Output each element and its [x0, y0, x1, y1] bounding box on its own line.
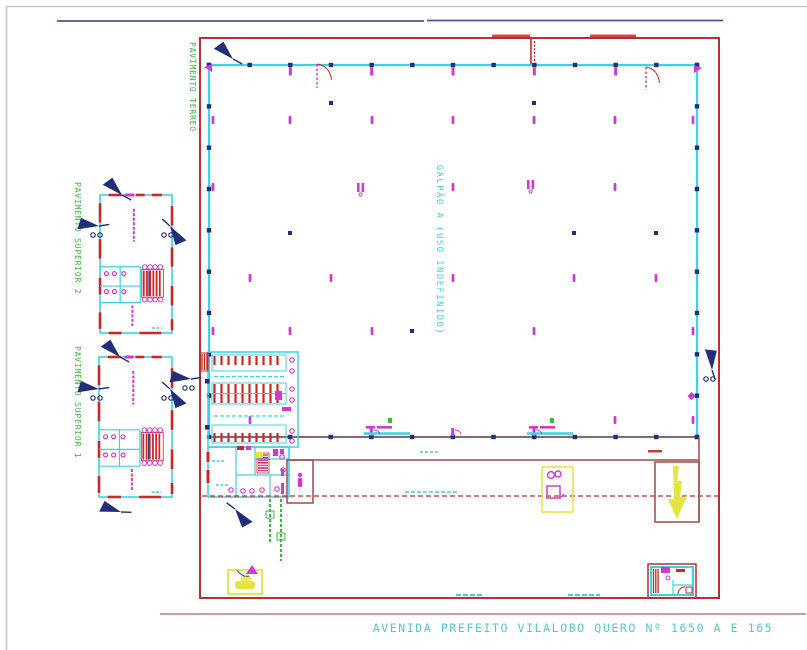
- fixture-mark: [290, 439, 294, 443]
- sprinkler-tick: [614, 416, 617, 424]
- toilet-fixture: [121, 453, 125, 457]
- column-marker: [207, 187, 211, 191]
- wall-diamond: [688, 392, 696, 400]
- section-triangle-icon: [99, 338, 123, 357]
- column-marker: [695, 187, 699, 191]
- fixture-mark: [686, 587, 692, 593]
- wall-tick: [452, 68, 455, 76]
- column-marker: [207, 311, 211, 315]
- symbol-bar: [362, 183, 365, 192]
- scallop: [153, 265, 158, 270]
- column-marker: [695, 311, 699, 315]
- level-text: [529, 426, 538, 429]
- column-marker: [695, 104, 699, 108]
- fixture-mark: [661, 567, 670, 573]
- column-marker: [207, 145, 211, 149]
- level-text: [540, 426, 555, 429]
- scallop: [142, 265, 147, 270]
- flow-arrow-icon: [668, 466, 687, 519]
- section-tail: [121, 509, 131, 514]
- sprinkler-tick: [533, 327, 536, 335]
- column-marker: [695, 228, 699, 232]
- fixture-mark: [282, 407, 291, 411]
- fixture-mark: [290, 369, 294, 373]
- interior-column: [329, 101, 333, 105]
- scallop: [158, 461, 163, 466]
- level-text: [377, 426, 392, 429]
- section-number: [190, 386, 194, 390]
- label-warehouse-a: GALPÃO A (USO INDEFINIDO): [434, 165, 445, 335]
- sprinkler-tick: [289, 116, 292, 124]
- fixture-mark: [290, 387, 294, 391]
- fixture-mark: [281, 483, 284, 494]
- sprinkler-tick: [452, 183, 455, 191]
- toilet-fixture: [122, 272, 126, 276]
- column-marker: [695, 352, 699, 356]
- scallop: [148, 297, 153, 302]
- scallop: [147, 428, 152, 433]
- door-arc: [678, 587, 685, 594]
- door-arc: [455, 430, 461, 434]
- section-tail: [232, 59, 242, 64]
- fixture-mark: [666, 576, 670, 580]
- toilet-fixture: [112, 435, 116, 439]
- sprinkler-tick: [212, 183, 215, 191]
- toilet-fixture: [104, 290, 108, 294]
- section-marker: [220, 503, 255, 531]
- wall-tick: [614, 68, 617, 76]
- fence-label-text: [492, 35, 530, 38]
- column-marker: [207, 104, 211, 108]
- column-marker: [247, 63, 251, 67]
- scallop: [158, 265, 163, 270]
- column-marker: [613, 435, 617, 439]
- scallop: [153, 461, 158, 466]
- equipment-mark: [256, 452, 263, 458]
- fence-labels: [492, 35, 636, 67]
- section-triangle-icon: [230, 509, 255, 530]
- symbol-bar: [357, 183, 360, 192]
- interior-sprinkler-grid: [212, 101, 695, 424]
- interior-column: [532, 101, 536, 105]
- scallop: [158, 297, 163, 302]
- column-marker: [207, 228, 211, 232]
- section-tail: [99, 385, 109, 392]
- section-number: [162, 396, 166, 400]
- sprinkler-tick: [330, 274, 333, 282]
- person-symbol: [298, 478, 302, 487]
- street-address-label: AVENIDA PREFEITO VILALOBO QUERO Nº 1650 …: [373, 621, 774, 635]
- equipment-symbol: [548, 472, 555, 479]
- sprinkler-tick: [371, 327, 374, 335]
- label-upper-floor-2: PAVIMENTO SUPERIOR 2: [73, 182, 82, 294]
- plan-outline: [100, 195, 172, 333]
- section-triangle-icon: [97, 498, 121, 518]
- interior-column: [410, 329, 414, 333]
- interior-column: [654, 231, 658, 235]
- sprinkler-tick: [249, 416, 252, 424]
- scallop: [148, 265, 153, 270]
- sprinkler-tick: [614, 116, 617, 124]
- section-marker: [97, 495, 132, 520]
- section-triangle-icon: [101, 176, 125, 195]
- wall-tick: [370, 428, 373, 436]
- column-marker: [451, 63, 455, 67]
- interior-column: [572, 231, 576, 235]
- fixture-mark: [246, 446, 251, 450]
- sprinkler-tick: [212, 327, 215, 335]
- sprinkler-tick: [692, 116, 695, 124]
- upper-floor-1-plan: [99, 356, 172, 498]
- locker-rows-area: [200, 352, 298, 447]
- gate-symbol: [228, 565, 262, 594]
- symbol-dot: [529, 190, 532, 193]
- toilet-fixture: [241, 489, 245, 493]
- door-swing-symbols: [317, 64, 660, 90]
- fixture-mark: [290, 398, 294, 402]
- column-marker: [613, 63, 617, 67]
- symbol-dot: [359, 193, 362, 196]
- cad-drawing-page: AVENIDA PREFEITO VILALOBO QUERO Nº 1650 …: [0, 0, 807, 650]
- column-marker: [491, 63, 495, 67]
- column-marker: [573, 63, 577, 67]
- scallop: [142, 297, 147, 302]
- site-boundary: [200, 38, 719, 598]
- section-number: [183, 386, 187, 390]
- page-edge-line: [7, 7, 807, 650]
- upper-floor-2-plan: [100, 194, 172, 334]
- toilet-fixture: [250, 489, 254, 493]
- toilet-fixture: [104, 272, 108, 276]
- sprinkler-tick: [533, 116, 536, 124]
- scallop: [158, 428, 163, 433]
- section-tail: [161, 219, 171, 226]
- band-note-text: [648, 450, 662, 453]
- sprinkler-tick: [289, 327, 292, 335]
- fixture-mark: [281, 469, 284, 476]
- plan-outline: [99, 357, 172, 497]
- toilet-fixture: [112, 290, 116, 294]
- fixture-mark: [237, 446, 244, 450]
- fixture-mark: [290, 358, 294, 362]
- section-tail: [161, 382, 171, 389]
- plan-top-label: [125, 194, 134, 197]
- page-frame: [7, 7, 807, 650]
- column-marker: [207, 269, 211, 273]
- sprinkler-tick: [655, 274, 658, 282]
- column-marker: [369, 63, 373, 67]
- toilet-fixture: [260, 488, 264, 492]
- fence-label-text: [590, 35, 636, 38]
- fixture-mark: [290, 429, 294, 433]
- toilet-fixture: [104, 435, 108, 439]
- column-marker: [410, 435, 414, 439]
- interior-symbol: [357, 183, 364, 196]
- section-number: [91, 396, 95, 400]
- section-number: [162, 233, 166, 237]
- scallop: [153, 428, 158, 433]
- wall-tick: [289, 68, 292, 76]
- section-number: [91, 233, 95, 237]
- column-marker: [410, 63, 414, 67]
- section-marker: [212, 40, 246, 64]
- door-arc: [646, 67, 660, 83]
- section-triangle-icon: [166, 365, 191, 387]
- scallop: [142, 428, 147, 433]
- fixture-mark: [280, 449, 284, 454]
- sprinkler-tick: [452, 274, 455, 282]
- toilet-fixture: [229, 488, 233, 492]
- level-mark: [550, 418, 554, 423]
- sprinkler-tick: [452, 116, 455, 124]
- person-symbol: [298, 473, 302, 477]
- reference-topline: [57, 21, 723, 22]
- toilet-fixture: [275, 487, 279, 491]
- column-marker: [695, 393, 699, 397]
- equipment-symbol: [555, 471, 561, 477]
- toilet-fixture: [112, 453, 116, 457]
- section-tail: [226, 503, 236, 509]
- column-marker: [329, 63, 333, 67]
- section-triangle-icon: [212, 40, 236, 59]
- sprinkler-tick: [573, 274, 576, 282]
- toilet-fixture: [104, 453, 108, 457]
- scallop: [142, 461, 147, 466]
- label-upper-floor-1: PAVIMENTO SUPERIOR 1: [73, 346, 82, 458]
- symbol-bar: [532, 180, 535, 189]
- sprinkler-tick: [212, 116, 215, 124]
- level-mark: [388, 418, 392, 423]
- sprinkler-tick: [249, 274, 252, 282]
- column-marker: [654, 63, 658, 67]
- column-marker: [532, 63, 536, 67]
- label-ground-floor: PAVIMENTO TERREO: [188, 42, 197, 132]
- toilet-fixture: [122, 290, 126, 294]
- ground-detail-rooms: [208, 446, 289, 561]
- level-text: [366, 426, 375, 429]
- sprinkler-tick: [614, 183, 617, 191]
- section-triangle-icon: [700, 344, 724, 370]
- wall-tick: [370, 68, 373, 76]
- sprinkler-tick: [692, 416, 695, 424]
- column-marker: [329, 435, 333, 439]
- scallop: [147, 461, 152, 466]
- section-number: [704, 377, 708, 381]
- interior-column: [288, 231, 292, 235]
- column-marker: [695, 269, 699, 273]
- wall-tick: [533, 428, 536, 436]
- plan-top-label: [125, 356, 134, 359]
- section-marker: [697, 344, 730, 380]
- column-marker: [288, 63, 292, 67]
- detail-walls: [651, 567, 693, 595]
- gate-glyph: [235, 581, 255, 589]
- wall-tick: [533, 68, 536, 76]
- toilet-fixture: [121, 435, 125, 439]
- column-marker: [491, 435, 495, 439]
- driveway-band: [202, 437, 718, 522]
- column-marker: [695, 145, 699, 149]
- toilet-fixture: [112, 272, 116, 276]
- interior-symbol: [527, 180, 534, 193]
- scallop: [153, 297, 158, 302]
- column-marker: [205, 379, 210, 384]
- floorplan-canvas: AVENIDA PREFEITO VILALOBO QUERO Nº 1650 …: [0, 0, 807, 650]
- column-marker: [205, 425, 210, 430]
- symbol-bar: [527, 180, 530, 189]
- bottom-wall-level-labels: [364, 418, 573, 434]
- column-marker: [573, 435, 577, 439]
- sprinkler-tick: [692, 327, 695, 335]
- column-marker: [654, 435, 658, 439]
- wall-tick: [451, 428, 454, 436]
- fixture-mark: [275, 391, 282, 400]
- section-triangle-icon: [164, 226, 189, 248]
- section-triangle-icon: [164, 389, 189, 411]
- fixture-mark: [676, 569, 685, 572]
- fixture-mark: [273, 449, 278, 456]
- corner-room-detail: [648, 564, 696, 598]
- sprinkler-tick: [371, 116, 374, 124]
